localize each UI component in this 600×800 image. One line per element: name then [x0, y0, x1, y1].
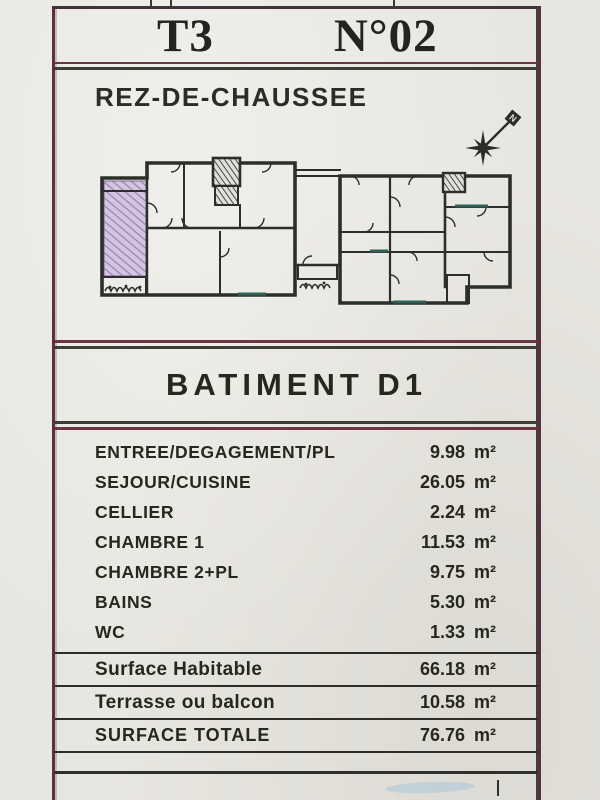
- grand-total-row: SURFACE TOTALE 76.76 m²: [55, 720, 538, 753]
- floor-plan: N: [88, 105, 541, 317]
- table-row: ENTREE/DEGAGEMENT/PL 9.98 m²: [55, 437, 538, 467]
- area-unit: m²: [474, 592, 500, 613]
- room-area-value: 9.98: [413, 442, 465, 463]
- area-unit: m²: [474, 502, 500, 523]
- building-header: BATIMENT D1: [55, 349, 538, 421]
- sheet-frame: T3 N°02 REZ-DE-CHAUSSEE: [52, 6, 541, 800]
- divider: [55, 421, 538, 430]
- room-area-value: 1.33: [413, 622, 465, 643]
- unit-header: T3 N°02: [55, 9, 538, 62]
- room-label: WC: [95, 622, 413, 643]
- plan-walls: [102, 158, 510, 303]
- next-box-partial: [55, 771, 538, 794]
- areas-table: ENTREE/DEGAGEMENT/PL 9.98 m² SEJOUR/CUIS…: [55, 430, 538, 753]
- area-unit: m²: [474, 532, 500, 553]
- building-label: BATIMENT D1: [166, 367, 427, 403]
- total-label: Terrasse ou balcon: [95, 692, 413, 714]
- area-unit: m²: [474, 442, 500, 463]
- room-area-value: 5.30: [413, 592, 465, 613]
- ink-smudge: [385, 780, 475, 794]
- area-unit: m²: [474, 562, 500, 583]
- unit-type-label: T3: [157, 9, 214, 63]
- spacer: [55, 753, 538, 771]
- room-label: ENTREE/DEGAGEMENT/PL: [95, 442, 413, 463]
- grand-total-label: SURFACE TOTALE: [95, 725, 413, 746]
- totals-block: Surface Habitable 66.18 m² Terrasse ou b…: [55, 652, 538, 753]
- divider: [55, 62, 538, 70]
- table-row: BAINS 5.30 m²: [55, 587, 538, 617]
- total-value: 66.18: [413, 659, 465, 680]
- room-area-value: 11.53: [413, 532, 465, 553]
- area-unit: m²: [474, 622, 500, 643]
- grand-total-value: 76.76: [413, 725, 465, 746]
- floor-plan-section: REZ-DE-CHAUSSEE: [55, 70, 538, 340]
- room-label: SEJOUR/CUISINE: [95, 472, 413, 493]
- table-row: CELLIER 2.24 m²: [55, 497, 538, 527]
- total-label: Surface Habitable: [95, 659, 413, 681]
- highlighted-unit-area: [104, 181, 146, 276]
- total-row: Terrasse ou balcon 10.58 m²: [55, 687, 538, 720]
- north-compass-icon: N: [465, 110, 522, 167]
- scan-remnant-line: [497, 780, 499, 796]
- area-unit: m²: [474, 472, 500, 493]
- table-row: WC 1.33 m²: [55, 617, 538, 647]
- room-label: CELLIER: [95, 502, 413, 523]
- window-marks: [238, 206, 488, 302]
- terrace-dots: [109, 282, 326, 289]
- table-row: SEJOUR/CUISINE 26.05 m²: [55, 467, 538, 497]
- total-row: Surface Habitable 66.18 m²: [55, 654, 538, 687]
- scanned-sheet: T3 N°02 REZ-DE-CHAUSSEE: [0, 0, 600, 800]
- total-value: 10.58: [413, 692, 465, 713]
- room-area-value: 2.24: [413, 502, 465, 523]
- unit-number-label: N°02: [334, 9, 438, 63]
- room-area-value: 26.05: [413, 472, 465, 493]
- divider: [55, 340, 538, 349]
- room-area-value: 9.75: [413, 562, 465, 583]
- room-label: CHAMBRE 2+PL: [95, 562, 413, 583]
- area-unit: m²: [474, 725, 500, 746]
- area-unit: m²: [474, 692, 500, 713]
- area-unit: m²: [474, 659, 500, 680]
- room-label: CHAMBRE 1: [95, 532, 413, 553]
- table-row: CHAMBRE 2+PL 9.75 m²: [55, 557, 538, 587]
- room-label: BAINS: [95, 592, 413, 613]
- table-row: CHAMBRE 1 11.53 m²: [55, 527, 538, 557]
